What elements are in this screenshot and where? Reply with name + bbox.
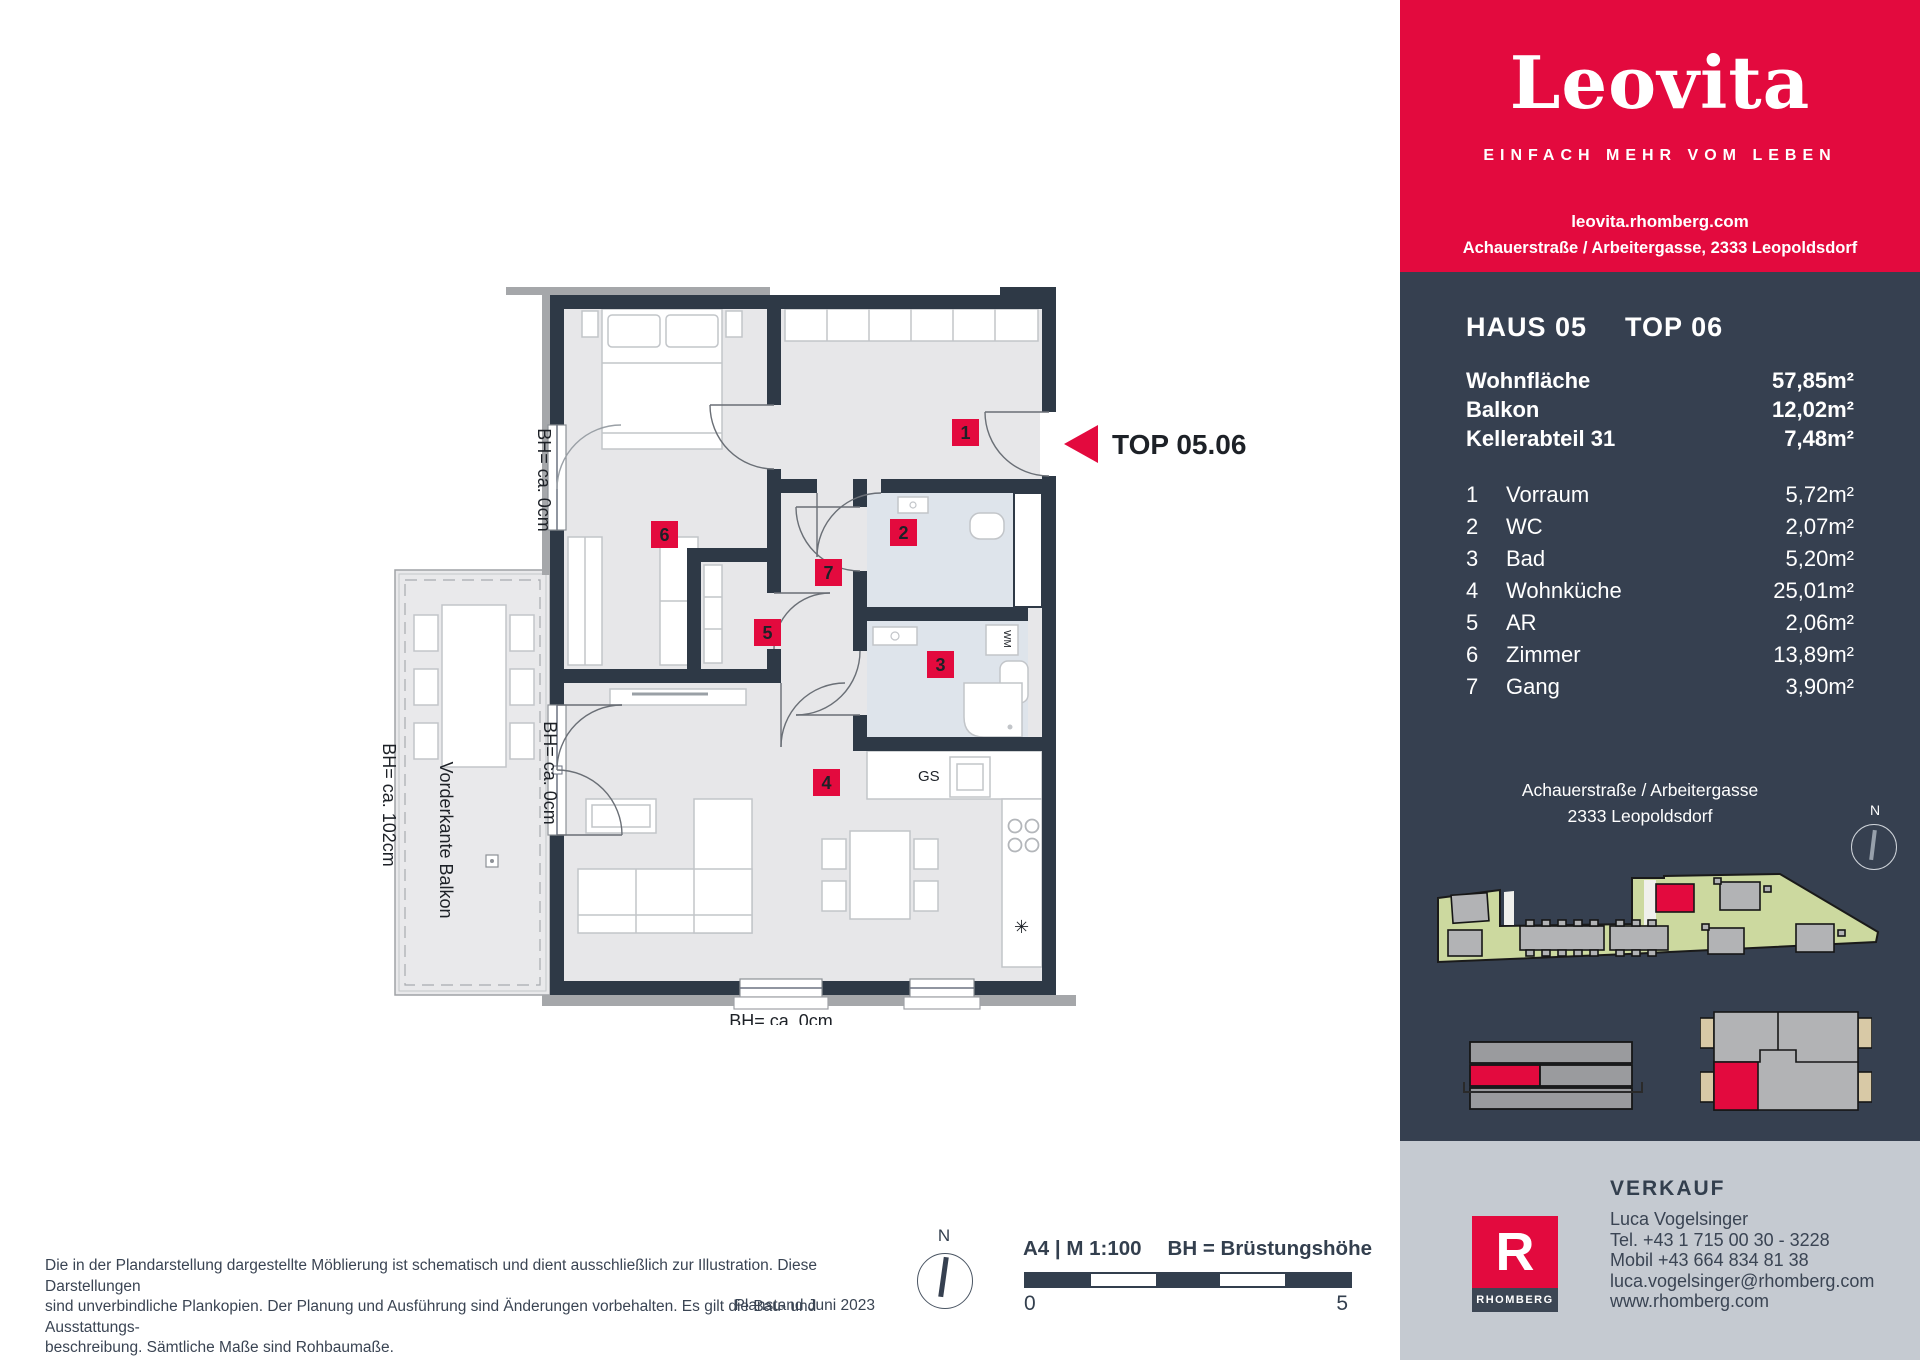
badge-ar: 5 — [754, 619, 781, 646]
project-address-line2: 2333 Leopoldsdorf — [1410, 803, 1870, 829]
contact-email[interactable]: luca.vogelsinger@rhomberg.com — [1610, 1271, 1874, 1292]
sideboard — [610, 689, 746, 705]
room-number: 1 — [1466, 482, 1478, 508]
area-row: Balkon12,02m² — [1466, 397, 1854, 426]
room-row: 1Vorraum5,72m² — [1466, 482, 1854, 514]
entry-closet — [785, 309, 1038, 341]
room-row: 6Zimmer13,89m² — [1466, 642, 1854, 674]
room-area: 25,01m² — [1773, 578, 1854, 604]
contact-tel[interactable]: Tel. +43 1 715 00 30 - 3228 — [1610, 1230, 1874, 1251]
room-area: 3,90m² — [1786, 674, 1854, 700]
svg-text:2: 2 — [898, 523, 908, 543]
area-value: 7,48m² — [1784, 426, 1854, 452]
area-value: 12,02m² — [1772, 397, 1854, 423]
svg-text:6: 6 — [659, 525, 669, 545]
room-name: Zimmer — [1506, 642, 1581, 668]
contact-name: Luca Vogelsinger — [1610, 1209, 1874, 1230]
shaft — [1014, 493, 1042, 607]
compass-n-label: N — [1847, 802, 1903, 818]
area-row: Wohnfläche57,85m² — [1466, 368, 1854, 397]
room-number: 5 — [1466, 610, 1478, 636]
disclaimer-line3: beschreibung. Sämtliche Maße sind Rohbau… — [45, 1338, 875, 1359]
room-row: 3Bad5,20m² — [1466, 546, 1854, 578]
badge-bad: 3 — [927, 651, 954, 678]
disclaimer-line1: Die in der Plandarstellung dargestellte … — [45, 1256, 875, 1297]
area-label: Kellerabteil 31 — [1466, 426, 1615, 451]
badge-vorraum: 1 — [952, 419, 979, 446]
balcony-table-set — [414, 605, 534, 767]
badge-gang: 7 — [815, 559, 842, 586]
contact-footer: R RHOMBERG VERKAUF Luca Vogelsinger Tel.… — [1400, 1141, 1920, 1360]
washing-machine-label: WM — [1001, 630, 1012, 648]
bed — [602, 309, 722, 449]
shower — [964, 683, 1022, 737]
unit-info-panel: HAUS 05TOP 06 Wohnfläche57,85m² Balkon12… — [1400, 272, 1920, 1141]
brand-address: Achauerstraße / Arbeitergasse, 2333 Leop… — [1400, 239, 1920, 258]
brand-header: Leovita EINFACH MEHR VOM LEBEN leovita.r… — [1400, 0, 1920, 272]
scale-start-label: 0 — [1024, 1292, 1036, 1316]
bh-label-window: BH= ca. 0cm — [534, 428, 554, 532]
compass-n-label: N — [913, 1226, 975, 1246]
vorderkante-label: Vorderkante Balkon — [436, 761, 456, 918]
project-address: Achauerstraße / Arbeitergasse 2333 Leopo… — [1410, 777, 1870, 829]
storage-shelf — [704, 565, 722, 663]
area-label: Wohnfläche — [1466, 368, 1590, 393]
bh-definition: BH = Brüstungshöhe — [1168, 1237, 1372, 1260]
room-name: AR — [1506, 610, 1537, 636]
page: GS WM ✳ — [0, 0, 1920, 1360]
room-area: 5,20m² — [1786, 546, 1854, 572]
room-number: 7 — [1466, 674, 1478, 700]
area-row: Kellerabteil 317,48m² — [1466, 426, 1854, 455]
bath-vanity — [873, 627, 917, 645]
bh-label-balcony-door: BH= ca. 0cm — [540, 721, 560, 825]
fridge-symbol: ✳ — [1014, 917, 1029, 937]
unit-title: HAUS 05TOP 06 — [1466, 312, 1761, 343]
room-number: 6 — [1466, 642, 1478, 668]
contact-block: Luca Vogelsinger Tel. +43 1 715 00 30 - … — [1610, 1209, 1874, 1312]
room-area: 2,06m² — [1786, 610, 1854, 636]
room-name: Vorraum — [1506, 482, 1589, 508]
highlighted-unit — [1714, 1062, 1758, 1110]
room-row: 2WC2,07m² — [1466, 514, 1854, 546]
bh-label-bottom-1: BH= ca. 0cm — [729, 1011, 833, 1025]
legend-title: A4 | M 1:100BH = Brüstungshöhe — [1023, 1237, 1398, 1261]
room-name: Bad — [1506, 546, 1545, 572]
site-compass: N — [1847, 802, 1903, 872]
room-number: 2 — [1466, 514, 1478, 540]
room-number: 4 — [1466, 578, 1478, 604]
top-number: TOP 06 — [1625, 312, 1723, 342]
project-address-line1: Achauerstraße / Arbeitergasse — [1410, 777, 1870, 803]
svg-text:5: 5 — [762, 623, 772, 643]
scale-bar — [1024, 1272, 1352, 1288]
badge-zimmer: 6 — [651, 521, 678, 548]
badge-wohnkueche: 4 — [813, 769, 840, 796]
contact-web[interactable]: www.rhomberg.com — [1610, 1291, 1874, 1312]
area-value: 57,85m² — [1772, 368, 1854, 394]
plan-date: Planstand Juni 2023 — [45, 1297, 875, 1315]
wc-basin — [898, 497, 928, 513]
rhomberg-logo: R RHOMBERG — [1472, 1216, 1558, 1312]
contact-mobil[interactable]: Mobil +43 664 834 81 38 — [1610, 1250, 1874, 1271]
svg-text:7: 7 — [823, 563, 833, 583]
floorplate-diagram — [1700, 1010, 1872, 1114]
haus-number: HAUS 05 — [1466, 312, 1587, 342]
wc-floor — [867, 493, 1014, 607]
brand-url[interactable]: leovita.rhomberg.com — [1400, 212, 1920, 232]
room-name: WC — [1506, 514, 1543, 540]
bh-label-balcony-front: BH= ca. 102cm — [379, 743, 399, 867]
svg-text:1: 1 — [960, 423, 970, 443]
legend-compass: N — [913, 1226, 975, 1312]
rhomberg-r-icon: R — [1472, 1216, 1558, 1288]
brand-tagline: EINFACH MEHR VOM LEBEN — [1400, 147, 1920, 165]
top-label: TOP 05.06 — [1112, 429, 1246, 460]
entrance-marker: TOP 05.06 — [1064, 425, 1246, 463]
room-name: Wohnküche — [1506, 578, 1622, 604]
dishwasher-label: GS — [918, 768, 940, 785]
area-label: Balkon — [1466, 397, 1539, 422]
entrance-arrow-icon — [1064, 425, 1098, 463]
room-row: 4Wohnküche25,01m² — [1466, 578, 1854, 610]
room-number: 3 — [1466, 546, 1478, 572]
elevation-diagram — [1462, 1040, 1644, 1118]
verkauf-heading: VERKAUF — [1610, 1177, 1726, 1201]
wc-toilet — [970, 513, 1004, 539]
scale-end-label: 5 — [1330, 1292, 1348, 1316]
highlighted-floor — [1470, 1065, 1540, 1086]
brand-logo: Leovita — [1400, 40, 1920, 125]
room-row: 5AR2,06m² — [1466, 610, 1854, 642]
format-scale: A4 | M 1:100 — [1023, 1237, 1142, 1260]
room-name: Gang — [1506, 674, 1560, 700]
rhomberg-wordmark: RHOMBERG — [1472, 1288, 1558, 1312]
balcony — [395, 570, 550, 995]
svg-text:3: 3 — [935, 655, 945, 675]
badge-wc: 2 — [890, 519, 917, 546]
nightstand — [582, 311, 598, 337]
site-plan — [1408, 868, 1913, 1003]
room-area: 2,07m² — [1786, 514, 1854, 540]
room-row: 7Gang3,90m² — [1466, 674, 1854, 706]
room-area: 13,89m² — [1773, 642, 1854, 668]
floor-plan: GS WM ✳ — [310, 275, 1400, 1025]
nightstand — [726, 311, 742, 337]
room-area: 5,72m² — [1786, 482, 1854, 508]
svg-text:4: 4 — [821, 773, 831, 793]
highlighted-building — [1656, 884, 1694, 912]
